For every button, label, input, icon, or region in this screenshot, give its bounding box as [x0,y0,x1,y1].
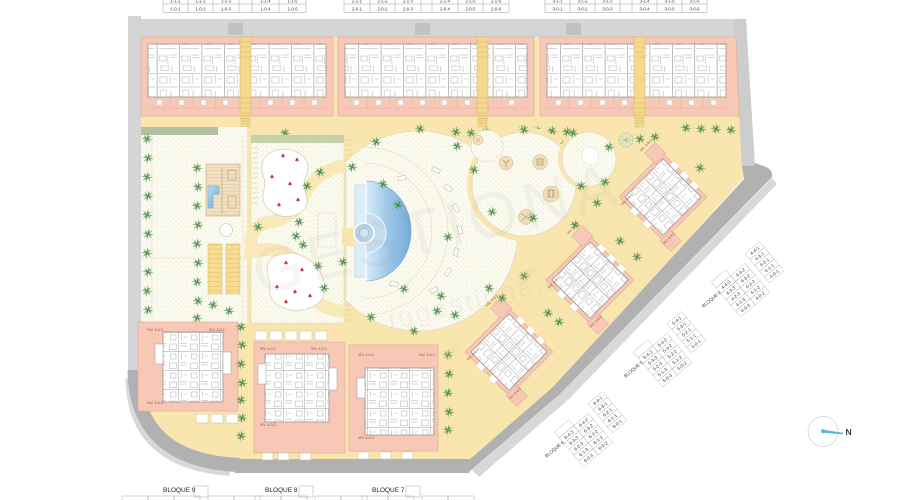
svg-text:2-1-5: 2-1-5 [465,0,476,4]
svg-text:2-0-1: 2-0-1 [352,7,363,12]
svg-text:2-0-3: 2-0-3 [403,7,414,12]
svg-text:VIV. 4-0-2: VIV. 4-0-2 [358,353,374,357]
svg-text:VIV. 4-0-2: VIV. 4-0-2 [147,328,163,332]
svg-text:1-0-5: 1-0-5 [287,7,298,12]
svg-text:3-1-3: 3-1-3 [602,0,613,4]
svg-text:2-1-3: 2-1-3 [403,0,414,4]
svg-text:VIV. 4-0-3: VIV. 4-0-3 [260,423,276,427]
svg-text:3-0-2: 3-0-2 [577,7,588,12]
svg-text:VIV. 4-0-1: VIV. 4-0-1 [419,353,435,357]
svg-text:3-0-3: 3-0-3 [602,7,613,12]
svg-text:2-1-4: 2-1-4 [440,0,451,4]
svg-text:1-1-1: 1-1-1 [170,0,181,4]
svg-text:2-1-6: 2-1-6 [491,0,502,4]
svg-text:VIV. 4-0-3: VIV. 4-0-3 [147,401,163,405]
svg-text:BLOQUE 7: BLOQUE 7 [372,487,405,494]
svg-text:3-0-6: 3-0-6 [689,7,700,12]
svg-text:2-1-2: 2-1-2 [377,0,388,4]
svg-text:1-0-1: 1-0-1 [170,7,181,12]
svg-text:VIV. 4-0-2: VIV. 4-0-2 [260,347,276,351]
svg-text:3-0-1: 3-0-1 [552,7,563,12]
svg-text:1-1-4: 1-1-4 [260,0,271,4]
svg-text:1-0-4: 1-0-4 [260,7,271,12]
svg-text:3-1-6: 3-1-6 [689,0,700,4]
svg-text:3-1-4: 3-1-4 [639,0,650,4]
svg-text:2-0-4: 2-0-4 [440,7,451,12]
svg-text:1-1-3: 1-1-3 [221,0,232,4]
svg-text:BLOQUE 8: BLOQUE 8 [265,487,298,494]
svg-text:3-1-1: 3-1-1 [552,0,563,4]
svg-text:3-0-4: 3-0-4 [639,7,650,12]
svg-text:1-1-2: 1-1-2 [195,0,206,4]
svg-text:1-0-2: 1-0-2 [195,7,206,12]
svg-text:2-0-5: 2-0-5 [465,7,476,12]
svg-text:3-0-5: 3-0-5 [664,7,675,12]
svg-text:2-1-1: 2-1-1 [352,0,363,4]
svg-text:2-0-2: 2-0-2 [377,7,388,12]
svg-text:VIV. 4-0-1: VIV. 4-0-1 [311,347,327,351]
svg-text:3-1-5: 3-1-5 [664,0,675,4]
svg-text:1-1-5: 1-1-5 [287,0,298,4]
svg-text:N: N [846,427,852,437]
svg-text:1-0-3: 1-0-3 [221,7,232,12]
svg-text:BLOQUE 9: BLOQUE 9 [163,487,196,494]
svg-text:2-0-6: 2-0-6 [491,7,502,12]
svg-text:3-1-2: 3-1-2 [577,0,588,4]
svg-text:VIV. 4-0-1: VIV. 4-0-1 [209,328,225,332]
svg-text:VIV. 4-0-3: VIV. 4-0-3 [358,436,374,440]
